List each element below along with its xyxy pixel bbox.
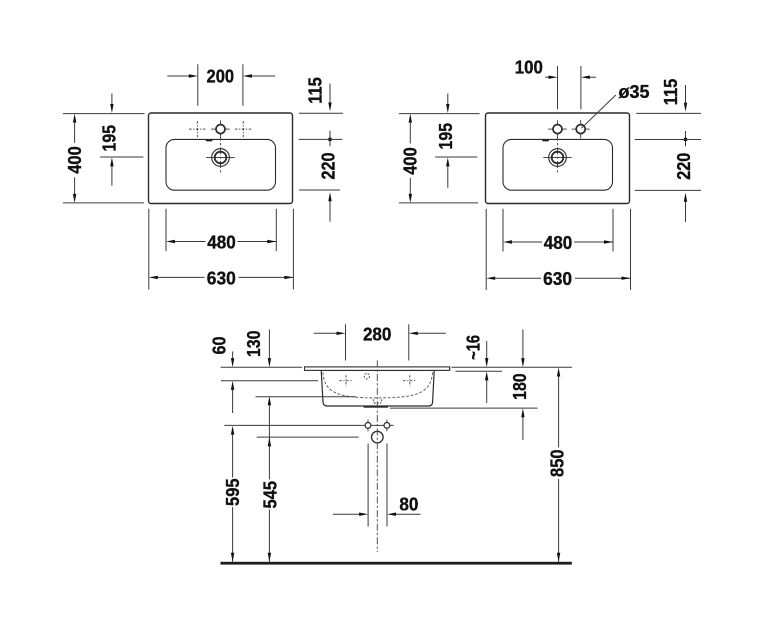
svg-text:545: 545	[259, 481, 280, 509]
svg-text:220: 220	[673, 153, 694, 180]
svg-text:115: 115	[660, 79, 681, 106]
svg-text:195: 195	[99, 125, 120, 152]
svg-text:100: 100	[515, 57, 543, 78]
svg-text:80: 80	[399, 494, 418, 515]
svg-text:630: 630	[543, 268, 572, 289]
svg-text:130: 130	[243, 331, 264, 358]
svg-text:~16: ~16	[462, 335, 483, 360]
svg-text:595: 595	[222, 478, 243, 506]
svg-text:180: 180	[509, 373, 530, 400]
svg-text:400: 400	[64, 146, 85, 174]
svg-text:480: 480	[207, 231, 236, 252]
svg-text:280: 280	[363, 323, 392, 344]
svg-text:850: 850	[547, 449, 568, 477]
svg-text:115: 115	[304, 77, 325, 104]
svg-text:200: 200	[207, 66, 235, 87]
svg-text:60: 60	[208, 337, 229, 355]
svg-text:ø35: ø35	[619, 81, 650, 102]
svg-text:400: 400	[400, 147, 421, 175]
svg-text:630: 630	[207, 267, 236, 288]
svg-text:195: 195	[435, 123, 456, 150]
svg-text:220: 220	[318, 153, 339, 180]
svg-text:480: 480	[544, 232, 573, 253]
